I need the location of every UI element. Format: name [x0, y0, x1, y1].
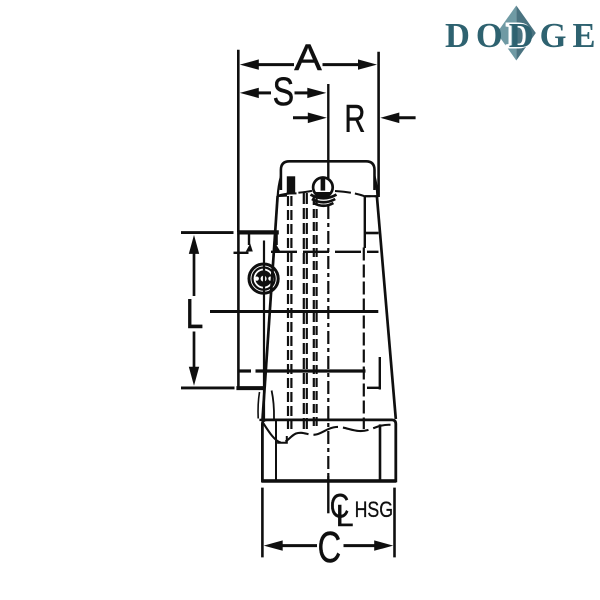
svg-text:L: L — [186, 290, 204, 337]
svg-text:S: S — [273, 70, 295, 114]
svg-text:DODGE: DODGE — [445, 17, 600, 55]
svg-text:C: C — [318, 524, 342, 572]
svg-text:A: A — [294, 36, 322, 78]
svg-text:R: R — [344, 97, 365, 140]
svg-text:HSG: HSG — [355, 497, 394, 522]
